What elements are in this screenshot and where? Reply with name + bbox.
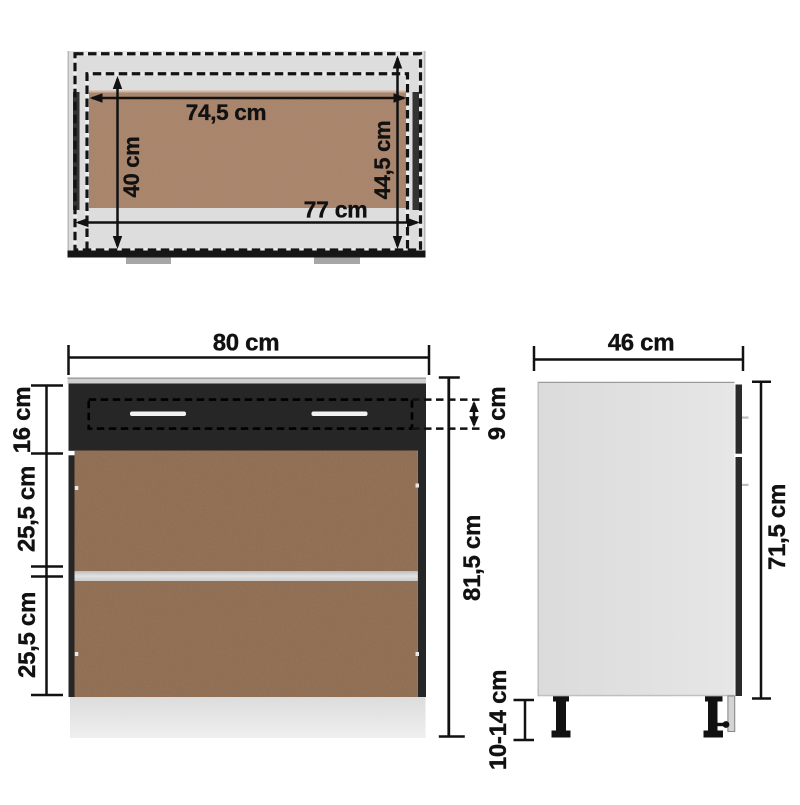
svg-text:74,5 cm: 74,5 cm (186, 100, 266, 125)
svg-text:25,5 cm: 25,5 cm (14, 592, 41, 678)
svg-text:71,5 cm: 71,5 cm (764, 484, 791, 570)
svg-text:25,5 cm: 25,5 cm (14, 466, 41, 552)
svg-text:44,5 cm: 44,5 cm (370, 121, 395, 200)
svg-text:46 cm: 46 cm (608, 330, 675, 357)
svg-text:9 cm: 9 cm (484, 387, 511, 441)
svg-text:10-14 cm: 10-14 cm (485, 670, 512, 770)
svg-text:80 cm: 80 cm (213, 330, 280, 357)
svg-text:16 cm: 16 cm (9, 387, 36, 454)
svg-text:77 cm: 77 cm (304, 197, 368, 223)
svg-text:40 cm: 40 cm (119, 137, 144, 198)
svg-text:81,5 cm: 81,5 cm (459, 515, 486, 601)
